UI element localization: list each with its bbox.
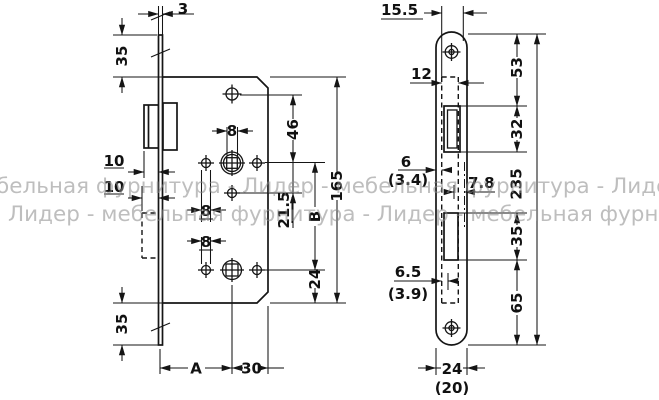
dim-spindle-to-edge: 30 (241, 360, 262, 378)
dim-square-width: 8 (227, 122, 237, 140)
dim-plate-width: 24 (442, 360, 463, 378)
dim-bottom-margin: 35 (113, 314, 131, 335)
dim-latch-cutout: 32 (508, 119, 526, 140)
screw-hole (198, 155, 214, 171)
top-hole (223, 85, 242, 104)
dim-top-margin: 35 (113, 46, 131, 67)
dim-edge-margin: 6 (401, 153, 411, 171)
dim-plate-thickness: 3 (178, 0, 188, 18)
dim-plate-width-alt: (20) (435, 379, 470, 397)
dim-lower-hole: 8 (201, 233, 211, 251)
dim-bolt-cutout: 35 (508, 226, 526, 247)
watermark-line1: бельная фурнитура - Лидер - мебельная фу… (0, 174, 659, 199)
handle-follower (219, 150, 245, 176)
dim-top-to-latch: 53 (508, 57, 526, 78)
dim-backset: A (190, 360, 202, 378)
dim-latch-protrusion: 10 (104, 152, 125, 170)
screw-hole (249, 155, 265, 171)
dim-case-width: 12 (411, 65, 432, 83)
dim-lower-margin: 6.5 (395, 263, 422, 281)
screw-hole (249, 262, 265, 278)
dim-bolt-to-bottom: 65 (508, 293, 526, 314)
watermark-line2: Лидер - мебельная фурнитура - Лидер - ме… (8, 202, 659, 227)
mortise-lock-drawing: 3 35 35 10 10 8 8 (0, 0, 659, 400)
dim-case-offset: 15.5 (381, 1, 418, 19)
dim-hole-to-spindle: 46 (284, 119, 302, 140)
dim-follower-to-bottom: 24 (306, 269, 324, 290)
technical-drawing: 3 35 35 10 10 8 8 (0, 0, 659, 400)
faceplate-front-view: 15.5 12 6 (3.4) 7.8 6.5 (3.9) 53 (381, 1, 546, 397)
dim-lower-margin-alt: (3.9) (388, 285, 428, 303)
screw-hole (198, 262, 214, 278)
wc-follower (220, 258, 244, 282)
